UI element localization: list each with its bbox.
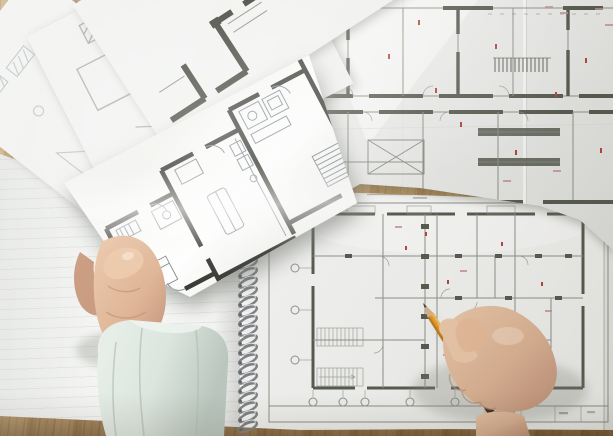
desk-photo: Top view of an architect's desk: a left … bbox=[0, 0, 613, 436]
shirt-cuff bbox=[97, 320, 228, 436]
right-hand bbox=[380, 278, 613, 436]
right-wrist bbox=[476, 412, 530, 436]
left-hand bbox=[46, 222, 246, 436]
